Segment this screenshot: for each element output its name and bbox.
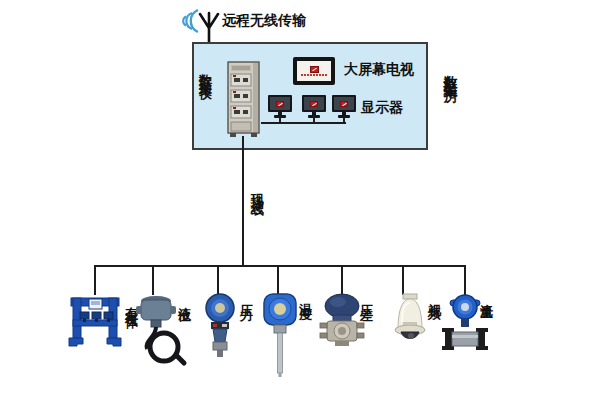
data-acquisition-cabinet-icon (226, 60, 262, 138)
tv-screen (297, 61, 331, 81)
temperature-sensor-icon (262, 292, 298, 378)
monitor-logo-icon (340, 101, 348, 107)
fieldbus-feed-line (242, 136, 244, 266)
monitor-logo-icon (310, 101, 318, 107)
differential-pressure-transmitter-icon (319, 292, 365, 352)
fieldbus-drop-line (217, 266, 219, 295)
big-screen-tv-icon (293, 57, 335, 85)
monitor-logo-icon (276, 101, 284, 107)
fieldbus-drop-line (464, 266, 466, 295)
pressure-transmitter-icon (200, 292, 240, 358)
cabinet-label: 数据采集仪 (199, 64, 212, 79)
fieldbus-label: 现场总线 (251, 183, 264, 195)
video-camera-icon (390, 292, 430, 348)
fieldbus-drop-line (341, 266, 343, 295)
device-label: 压力 (240, 294, 253, 300)
room-label: 数据采集房 (444, 64, 458, 79)
fieldbus-drop-line (277, 266, 279, 295)
monitors-label: 显示器 (361, 100, 403, 115)
device-label: 流量 (480, 293, 493, 299)
monitor-icon (268, 95, 292, 112)
monitor-stub-line (279, 116, 281, 123)
liquid-level-sensor-icon (134, 293, 190, 371)
big-screen-tv-label: 大屏幕电视 (344, 62, 414, 77)
device-label: 温度 (299, 293, 312, 299)
harmful-gas-detector-icon (67, 294, 123, 348)
fieldbus-drop-line (152, 266, 154, 295)
antenna-icon (194, 8, 224, 44)
fieldbus-trunk-line (94, 265, 466, 267)
diagram-canvas: 远程无线传输 数据采集房 数据采集仪 (0, 0, 600, 400)
monitor-icon (332, 95, 356, 112)
fieldbus-drop-line (402, 266, 404, 295)
monitor-connector-line (261, 122, 346, 124)
monitor-stub-line (313, 116, 315, 123)
tv-logo-icon (310, 66, 319, 73)
device-label: 压差 (360, 294, 373, 300)
device-label: 液位 (178, 296, 191, 302)
wireless-transmission-label: 远程无线传输 (222, 13, 306, 28)
monitor-icon (302, 95, 326, 112)
fieldbus-drop-line (94, 266, 96, 295)
flow-meter-icon (440, 292, 490, 356)
monitor-stub-line (343, 116, 345, 123)
tv-logo-text (301, 74, 327, 76)
